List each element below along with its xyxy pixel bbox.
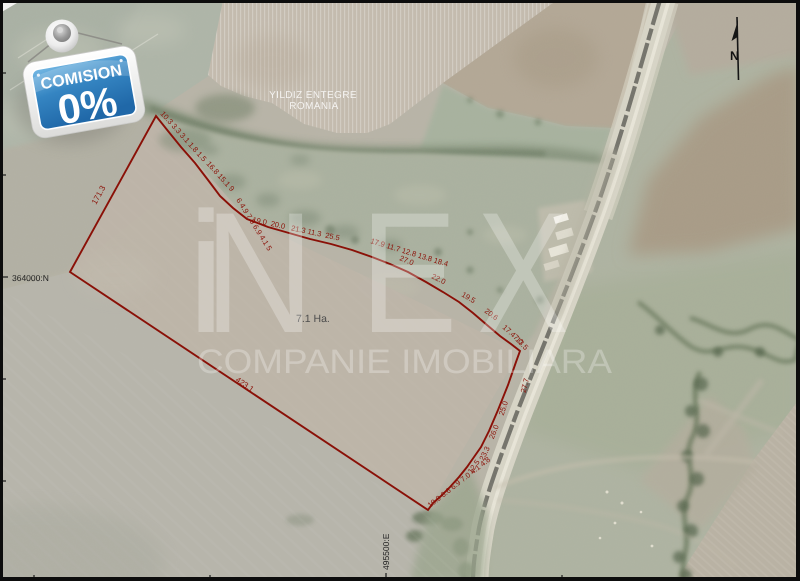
svg-text:YILDIZ ENTEGRE: YILDIZ ENTEGRE bbox=[269, 90, 357, 101]
svg-text:X: X bbox=[477, 177, 569, 369]
svg-text:N: N bbox=[204, 177, 315, 369]
svg-text:ROMANIA: ROMANIA bbox=[289, 101, 338, 112]
svg-text:N: N bbox=[730, 49, 739, 63]
svg-text:E: E bbox=[360, 177, 458, 369]
svg-text:495500:E: 495500:E bbox=[381, 533, 391, 570]
svg-text:COMPANIE IMOBILIARA: COMPANIE IMOBILIARA bbox=[197, 343, 612, 381]
svg-text:364000:N: 364000:N bbox=[12, 273, 49, 283]
